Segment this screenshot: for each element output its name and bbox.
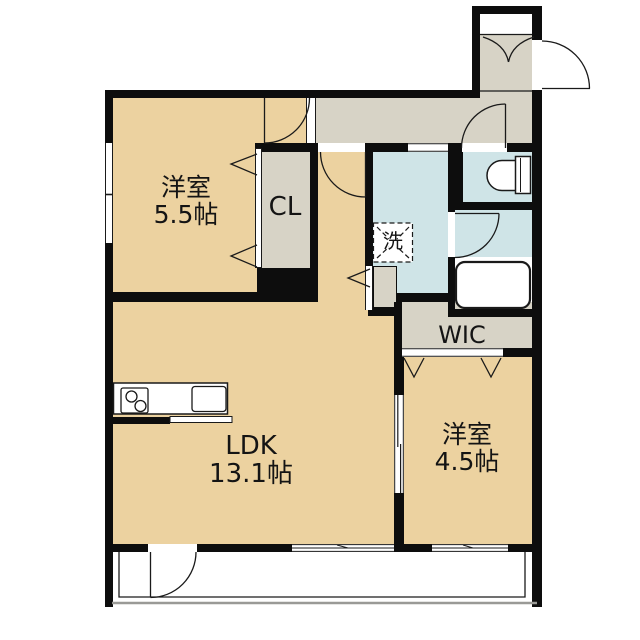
room-size: 4.5帖 xyxy=(404,448,530,475)
wic-text: WIC xyxy=(438,321,486,349)
balcony-door-swing xyxy=(151,552,197,598)
laundry-label: 洗 xyxy=(373,231,413,253)
room-name: 洋室 xyxy=(116,174,256,201)
laundry-text: 洗 xyxy=(383,229,403,253)
room-size: 5.5帖 xyxy=(116,201,256,228)
bedroom2-south-window xyxy=(432,545,508,552)
linework-layer xyxy=(0,0,640,640)
entry-door-swing xyxy=(542,41,590,89)
bedroom-left-window xyxy=(105,143,113,243)
toilet-door-swing xyxy=(462,104,506,148)
room-name: LDK xyxy=(171,432,331,460)
washroom-sliding-door xyxy=(408,144,448,151)
balcony-rail xyxy=(112,552,537,603)
room-size: 13.1帖 xyxy=(171,460,331,488)
bedroom-second-label: 洋室 4.5帖 xyxy=(404,421,530,475)
ldk-storage-opening-lines xyxy=(366,266,373,310)
toilet-icon xyxy=(487,157,531,194)
bathtub-icon xyxy=(456,262,530,308)
partition-sliding-door xyxy=(395,395,404,493)
kitchen-counter xyxy=(114,383,233,423)
bedroom-main-label: 洋室 5.5帖 xyxy=(116,174,256,228)
closet-text: CL xyxy=(269,192,302,222)
shoe-storage-double-doors xyxy=(480,35,534,92)
bedroom-main-door-swing xyxy=(265,98,316,143)
counter-ledge xyxy=(170,417,232,423)
wic-opening-lines xyxy=(402,349,503,356)
ldk-storage-door-mark xyxy=(348,269,370,287)
wic-door-marks xyxy=(404,358,501,377)
bath-door-swing xyxy=(455,214,499,258)
ldk-label: LDK 13.1帖 xyxy=(171,432,331,488)
ldk-door-swing xyxy=(321,152,366,197)
closet-label: CL xyxy=(260,193,310,221)
floor-plan: 洋室 5.5帖 CL 洗 WIC LDK 13.1帖 洋室 4.5帖 xyxy=(0,0,640,640)
ldk-south-window xyxy=(292,545,394,552)
room-name: 洋室 xyxy=(404,421,530,448)
wic-label: WIC xyxy=(397,323,527,349)
